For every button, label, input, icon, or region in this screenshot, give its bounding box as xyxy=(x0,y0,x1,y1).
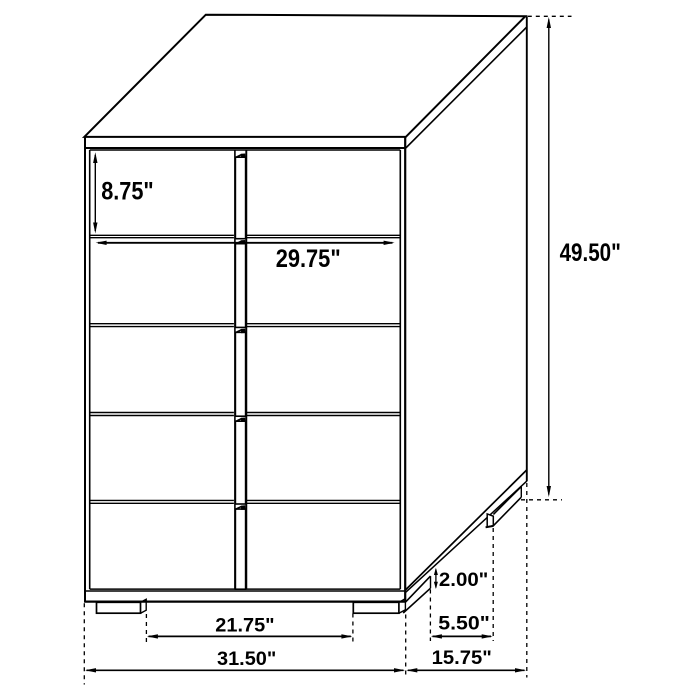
svg-text:21.75": 21.75" xyxy=(215,615,274,637)
svg-text:5.50": 5.50" xyxy=(438,613,490,635)
svg-text:15.75": 15.75" xyxy=(432,647,492,669)
svg-text:31.50": 31.50" xyxy=(217,648,276,670)
svg-text:8.75": 8.75" xyxy=(101,178,154,206)
svg-text:2.00": 2.00" xyxy=(439,569,489,591)
svg-text:49.50": 49.50" xyxy=(560,239,621,267)
svg-text:29.75": 29.75" xyxy=(276,245,341,273)
